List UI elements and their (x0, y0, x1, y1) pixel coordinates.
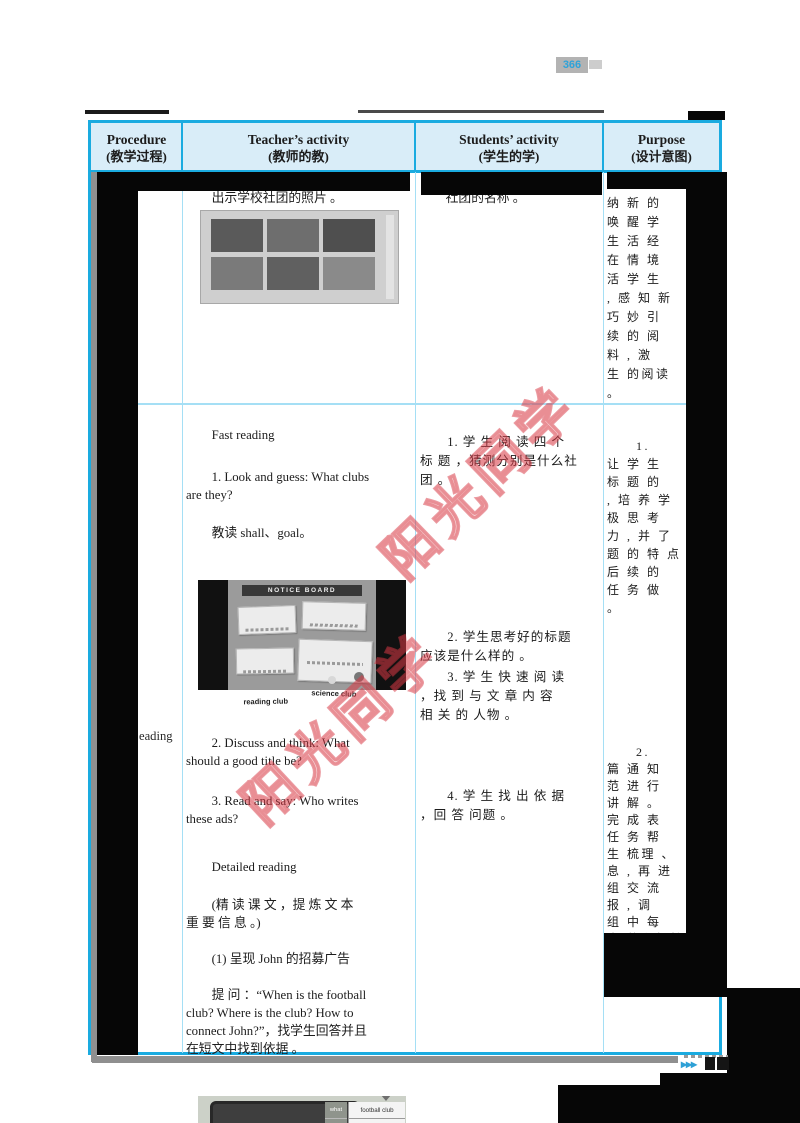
scan-shadow-line (91, 172, 97, 1062)
procedure-stage-fragment: eading (139, 729, 173, 744)
letterbox-bar (376, 580, 406, 690)
header-teacher: Teacher’s activity (教师的教) (183, 125, 414, 171)
detailed-reading-heading: Detailed reading (186, 858, 412, 876)
redaction-right-strip (686, 172, 727, 988)
row2-teacher-cell: Fast reading 1. Look and guess: What clu… (186, 408, 412, 1123)
header-purpose: Purpose (设计意图) (604, 125, 719, 171)
header-procedure-zh: (教学过程) (106, 148, 167, 165)
card-smalltext (310, 623, 358, 627)
club-card-football: football club (302, 601, 367, 631)
header-procedure-en: Procedure (107, 131, 166, 148)
fast-reading-heading: Fast reading (186, 426, 412, 444)
teacher-pronunciation-note: 教读 shall、goal。 (186, 524, 412, 542)
teacher-item1: 1. Look and guess: What clubs are they? (186, 468, 412, 504)
redaction-left-column (97, 172, 138, 1055)
redaction-bottom-band (558, 1085, 668, 1123)
page-number-badge: 366 (556, 57, 588, 73)
row1-purpose-text: 纳 新 的 唤 醒 学 生 活 经 在 情 境 活 学 生 , 感 知 新 巧 … (607, 194, 693, 403)
card-smalltext (307, 661, 363, 666)
students-item4: 4. 学 生 找 出 依 据 ，回 答 问题 。 (420, 787, 600, 825)
header-teacher-zh: (教师的教) (268, 148, 329, 165)
header-purpose-en: Purpose (638, 131, 685, 148)
club-name: reading club (238, 693, 294, 712)
header-teacher-en: Teacher’s activity (248, 131, 350, 148)
teacher-d2: 提 问 ：“When is the football club? Where i… (186, 986, 412, 1058)
ad-val-what: football club (348, 1102, 405, 1119)
club-card-reading: reading club (236, 647, 294, 674)
students-item3: 3. 学 生 快 速 阅 读 ，找 到 与 文 章 内 容 相 关 的 人物 。 (420, 668, 600, 725)
scan-artifact-line (85, 110, 169, 114)
scan-shadow-bar (92, 1056, 678, 1063)
header-procedure: Procedure (教学过程) (91, 125, 182, 171)
ad-key-when: when (325, 1119, 347, 1123)
footer-dark-mark (717, 1057, 729, 1070)
footer-dark-mark (705, 1057, 715, 1070)
redaction-purpose-bottom (604, 933, 727, 997)
redaction-bar (421, 172, 602, 195)
scan-artifact-line (358, 110, 604, 113)
row1-teacher-text: 出示学校社团的照片 。 (186, 189, 408, 207)
figure-blob (354, 672, 364, 682)
club-photo (323, 257, 375, 290)
club-photo (323, 219, 375, 252)
club-photo (267, 219, 319, 252)
header-students: Students’ activity (学生的学) (416, 125, 602, 171)
photo-mat (386, 215, 394, 299)
club-photo (211, 257, 263, 290)
club-name: science club (298, 684, 371, 705)
recruitment-ad-image: Goal! Goal! Goal! What do you do on Sund… (198, 1096, 406, 1123)
header-students-zh: (学生的学) (479, 148, 540, 165)
teacher-item3: 3. Read and say: Who writes these ads? (186, 792, 412, 828)
scanned-lesson-plan-page: 366 Procedure (教学过程) Teacher’s activity … (0, 0, 800, 1123)
students-item2: 2. 学生思考好的标题 应该是什么样的 。 (420, 628, 600, 666)
redaction-top-mark (688, 111, 725, 120)
ad-key-what: what (325, 1102, 347, 1119)
club-card-dancing: dancing club (238, 605, 297, 635)
students-item1: 1. 学 生 阅 读 四 个 标 题 ，猜测分别是什么社 团 。 (420, 433, 600, 490)
club-photo (211, 219, 263, 252)
detailed-reading-note: (精 读 课 文 ，提 炼 文 本 重 要 信 息 。) (186, 896, 412, 932)
purpose-item1: 1. 让 学 生 标 题 的 , 培 养 学 极 思 考 力 , 并 了 题 的… (607, 437, 693, 617)
redaction-bar (97, 172, 410, 191)
notice-board-title: NOTICE BOARD (242, 585, 362, 596)
column-divider (415, 172, 416, 1053)
badge-shadow (589, 60, 602, 69)
column-divider (182, 172, 183, 1053)
teacher-d1: (1) 呈现 John 的招募广告 (186, 950, 412, 968)
arrow-icon (381, 1096, 391, 1101)
redaction-bottom-band (660, 1073, 800, 1123)
header-purpose-zh: (设计意图) (631, 148, 692, 165)
footer-blue-marks: ▸▸▸ (681, 1058, 696, 1071)
card-smalltext (245, 627, 289, 632)
card-smalltext (243, 670, 287, 674)
column-divider (603, 172, 604, 1053)
row-divider (91, 403, 719, 405)
teacher-item2: 2. Discuss and think: What should a good… (186, 734, 412, 770)
club-photo (267, 257, 319, 290)
club-photos-image (200, 210, 399, 304)
figure-blob (328, 676, 336, 684)
letterbox-bar (198, 580, 228, 690)
header-students-en: Students’ activity (459, 131, 559, 148)
purpose-item2: 2. 篇 通 知 范 进 行 讲 解 。 完 成 表 任 务 帮 生 梳理 、 … (607, 744, 693, 948)
ad-val-when: Sundays (348, 1119, 405, 1123)
notice-board-image: NOTICE BOARD dancing club football club … (198, 580, 406, 690)
